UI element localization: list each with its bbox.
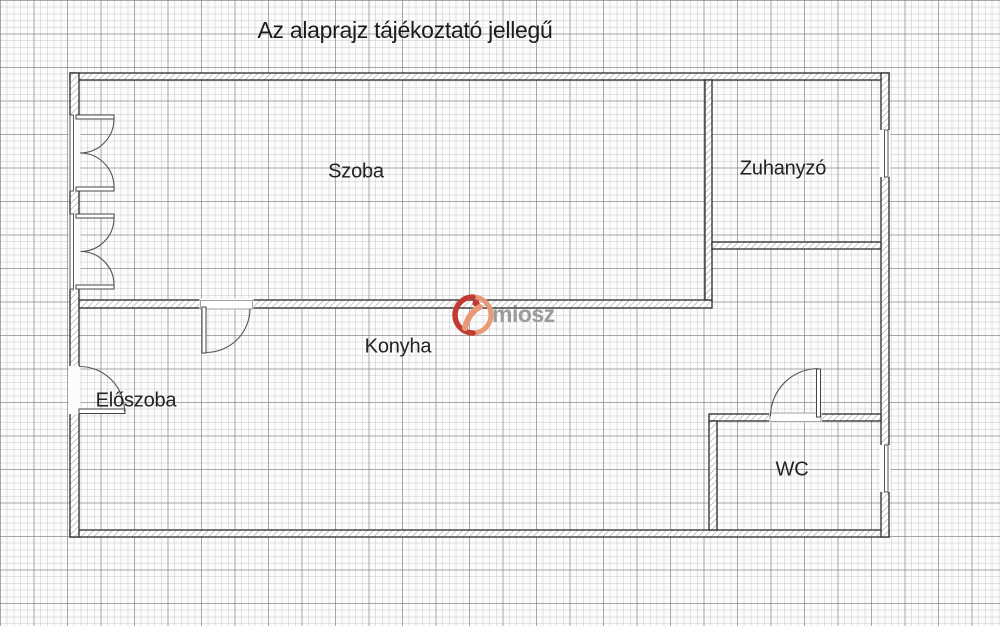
window-left-1 [70, 115, 74, 191]
wall-top [70, 73, 889, 80]
casement-leaf [76, 115, 114, 119]
kitchen-door-arc [206, 309, 250, 353]
casement-arc [81, 252, 115, 286]
room-label-eloszoba: Előszoba [96, 390, 177, 413]
casement-arc [81, 218, 115, 252]
wall-szoba-zuhanyzo [705, 80, 712, 300]
wc-door-frame [770, 413, 821, 422]
room-label-konyha: Konyha [365, 336, 432, 359]
watermark-text: miosz [492, 301, 555, 328]
window-zuhanyzo [885, 130, 889, 177]
window-left-2 [70, 214, 74, 289]
casement-leaf [76, 187, 114, 191]
wall-zuhanyzo-bottom [712, 242, 881, 249]
window-wc [885, 445, 889, 492]
doors [79, 301, 821, 422]
room-label-szoba: Szoba [328, 161, 384, 184]
casement-leaf [76, 214, 114, 218]
casement-leaf [76, 285, 114, 289]
wc-door-leaf [817, 369, 821, 417]
kitchen-door-leaf [202, 307, 206, 353]
watermark-logo-icon [451, 290, 495, 340]
casement-windows [76, 115, 114, 289]
page-title: Az alaprajz tájékoztató jellegű [258, 17, 553, 44]
wall-wc-left [709, 421, 717, 530]
kitchen-door-frame [201, 301, 253, 310]
casement-arc [80, 153, 114, 187]
wc-door-arc [771, 369, 819, 417]
wall-szoba-konyha [79, 300, 712, 308]
wall-bottom [70, 530, 889, 537]
room-label-wc: WC [776, 459, 809, 482]
room-label-zuhanyzo: Zuhanyzó [740, 158, 826, 181]
casement-arc [80, 119, 114, 153]
floorplan-canvas: Az alaprajz tájékoztató jellegű Szoba Zu… [0, 0, 1000, 626]
watermark: miosz [451, 290, 561, 340]
